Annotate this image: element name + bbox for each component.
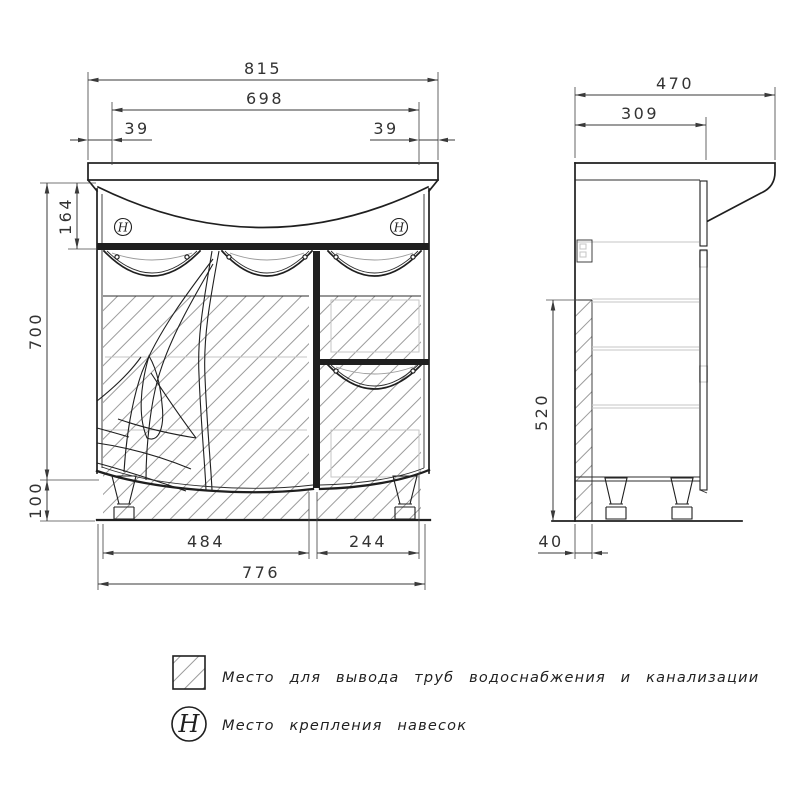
dim-100-label: 100	[26, 481, 45, 519]
dim-39-right: 39	[370, 119, 455, 142]
side-dimensions: 470 309 520 40	[532, 74, 775, 559]
dim-244-label: 244	[349, 532, 387, 551]
dim-470-label: 470	[656, 74, 694, 93]
side-legs	[605, 478, 693, 519]
h-circle-letter: H	[178, 710, 201, 738]
dim-470: 470	[575, 74, 775, 160]
front-drawer-divider	[320, 359, 429, 365]
hatch-square-symbol	[173, 656, 205, 689]
front-basin-curve	[98, 187, 428, 228]
legend-item-pipes: Место для вывода труб водоснабжения и ка…	[173, 656, 759, 689]
hook-mount-symbol-right: H	[393, 221, 405, 235]
dim-815-label: 815	[244, 59, 282, 78]
dim-698-label: 698	[246, 89, 284, 108]
vanity-technical-drawing: H H	[0, 0, 800, 800]
legend-hooks-label: Место крепления навесок	[222, 718, 467, 734]
front-section-divider	[313, 251, 320, 488]
hook-mount-symbol-left: H	[117, 221, 129, 235]
dim-40: 40	[538, 524, 608, 559]
legend-item-hooks: H Место крепления навесок	[172, 707, 467, 741]
front-top-rail	[97, 243, 429, 250]
dim-39-right-label: 39	[373, 119, 398, 138]
dim-520-label: 520	[532, 393, 551, 431]
side-sink-top	[575, 163, 775, 221]
drawing-canvas: H H	[0, 0, 800, 800]
dim-309-label: 309	[621, 104, 659, 123]
legend: Место для вывода труб водоснабжения и ка…	[172, 656, 759, 741]
dim-39-left-label: 39	[124, 119, 149, 138]
dim-520: 520	[532, 300, 578, 521]
side-pipe-zone-hatch	[575, 300, 592, 521]
dim-700-label: 700	[26, 312, 45, 350]
side-view: 470 309 520 40	[532, 74, 775, 559]
dim-100: 100	[26, 480, 95, 521]
legend-pipes-label: Место для вывода труб водоснабжения и ка…	[222, 670, 759, 686]
dim-309: 309	[575, 104, 706, 160]
dim-40-label: 40	[538, 532, 563, 551]
side-interior-details	[575, 240, 708, 481]
dim-776-label: 776	[242, 563, 280, 582]
front-scallop-handles	[104, 251, 421, 276]
side-door-face	[700, 181, 707, 493]
dim-39-left: 39	[70, 119, 152, 142]
dim-484-label: 484	[187, 532, 225, 551]
dim-164-label: 164	[56, 197, 75, 235]
front-pipe-zone-hatch-right	[317, 296, 421, 520]
front-sink-top	[88, 163, 438, 228]
front-view: H H	[26, 59, 455, 590]
dim-164: 164	[56, 183, 96, 249]
